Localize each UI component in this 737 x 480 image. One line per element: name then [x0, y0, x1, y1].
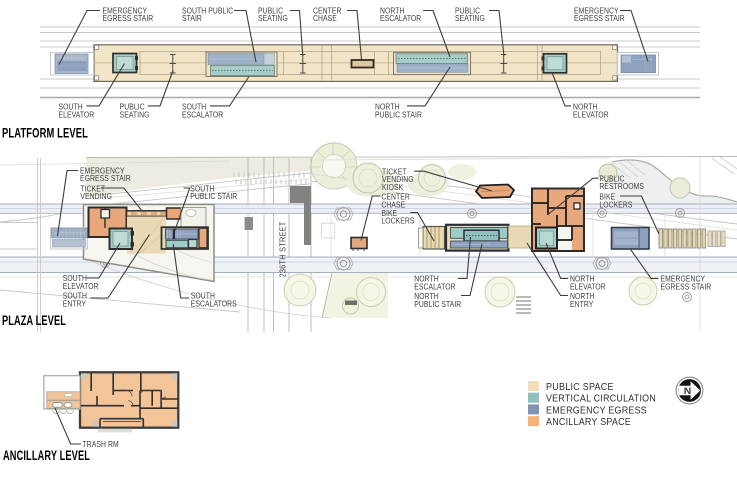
svg-text:EGRESS STAIR: EGRESS STAIR — [103, 13, 154, 23]
svg-text:EGRESS STAIR: EGRESS STAIR — [574, 13, 625, 23]
svg-text:PUBLIC STAIR: PUBLIC STAIR — [190, 191, 237, 201]
svg-text:ELEVATOR: ELEVATOR — [63, 281, 99, 291]
svg-text:ESCALATORS: ESCALATORS — [191, 298, 237, 308]
svg-text:STAIR: STAIR — [182, 13, 202, 23]
svg-text:236TH STREET: 236TH STREET — [279, 222, 288, 278]
svg-text:SEATING: SEATING — [120, 110, 150, 120]
svg-text:PUBLIC STAIR: PUBLIC STAIR — [414, 299, 461, 309]
svg-text:PUBLIC SPACE: PUBLIC SPACE — [546, 381, 614, 393]
svg-text:ENTRY: ENTRY — [63, 298, 87, 308]
svg-text:CHASE: CHASE — [313, 13, 337, 23]
svg-text:ELEVATOR: ELEVATOR — [570, 281, 606, 291]
svg-text:N: N — [684, 386, 692, 396]
svg-text:ANCILLARY SPACE: ANCILLARY SPACE — [546, 416, 631, 428]
svg-text:PUBLIC STAIR: PUBLIC STAIR — [375, 110, 422, 120]
svg-text:LOCKERS: LOCKERS — [381, 216, 414, 226]
svg-text:ENTRY: ENTRY — [570, 299, 594, 309]
svg-text:ESCALATOR: ESCALATOR — [182, 110, 223, 120]
svg-text:ELEVATOR: ELEVATOR — [59, 110, 95, 120]
svg-text:ELEVATOR: ELEVATOR — [573, 110, 609, 120]
svg-text:LOCKERS: LOCKERS — [599, 199, 632, 209]
svg-text:SEATING: SEATING — [258, 13, 288, 23]
svg-text:PLAZA LEVEL: PLAZA LEVEL — [2, 313, 66, 328]
svg-text:ANCILLARY LEVEL: ANCILLARY LEVEL — [3, 448, 90, 463]
svg-text:SEATING: SEATING — [455, 13, 485, 23]
svg-text:PLATFORM LEVEL: PLATFORM LEVEL — [2, 126, 88, 141]
svg-text:EGRESS STAIR: EGRESS STAIR — [661, 281, 712, 291]
svg-text:VERTICAL CIRCULATION: VERTICAL CIRCULATION — [546, 393, 656, 405]
svg-text:ESCALATOR: ESCALATOR — [380, 13, 421, 23]
svg-text:VENDING: VENDING — [80, 191, 112, 201]
svg-text:ESCALATOR: ESCALATOR — [414, 281, 455, 291]
svg-text:EMERGENCY EGRESS: EMERGENCY EGRESS — [546, 404, 647, 416]
svg-text:EGRESS STAIR: EGRESS STAIR — [80, 173, 131, 183]
svg-text:KIOSK: KIOSK — [382, 182, 403, 192]
svg-text:RESTROOMS: RESTROOMS — [599, 181, 644, 191]
